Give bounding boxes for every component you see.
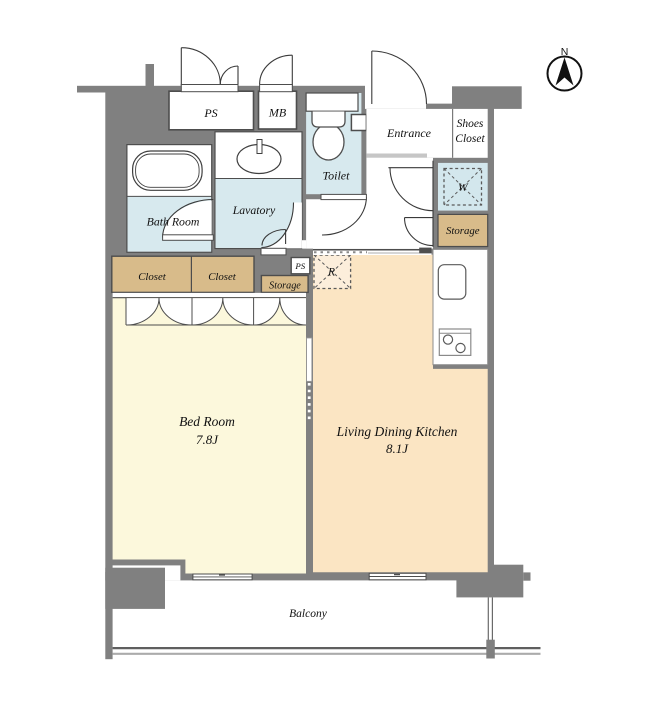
svg-text:Bath Room: Bath Room bbox=[147, 215, 200, 229]
svg-text:Closet: Closet bbox=[455, 133, 485, 145]
svg-text:Entrance: Entrance bbox=[386, 126, 432, 140]
svg-text:PS: PS bbox=[203, 106, 217, 120]
svg-text:N: N bbox=[561, 46, 569, 58]
svg-text:Living Dining Kitchen: Living Dining Kitchen bbox=[336, 424, 458, 439]
svg-text:Lavatory: Lavatory bbox=[232, 203, 276, 217]
svg-text:7.8J: 7.8J bbox=[196, 432, 219, 447]
svg-text:8.1J: 8.1J bbox=[386, 441, 409, 456]
svg-text:Closet: Closet bbox=[138, 271, 167, 283]
svg-text:Bed Room: Bed Room bbox=[179, 414, 235, 429]
svg-text:R: R bbox=[327, 267, 335, 279]
svg-text:W: W bbox=[458, 182, 469, 194]
svg-text:Storage: Storage bbox=[446, 225, 480, 237]
svg-text:Balcony: Balcony bbox=[289, 608, 328, 620]
svg-text:PS: PS bbox=[294, 261, 305, 271]
svg-text:MB: MB bbox=[268, 106, 287, 120]
svg-text:Storage: Storage bbox=[269, 281, 301, 292]
svg-text:Shoes: Shoes bbox=[457, 118, 484, 130]
svg-text:Closet: Closet bbox=[208, 271, 237, 283]
svg-text:Toilet: Toilet bbox=[323, 169, 351, 183]
